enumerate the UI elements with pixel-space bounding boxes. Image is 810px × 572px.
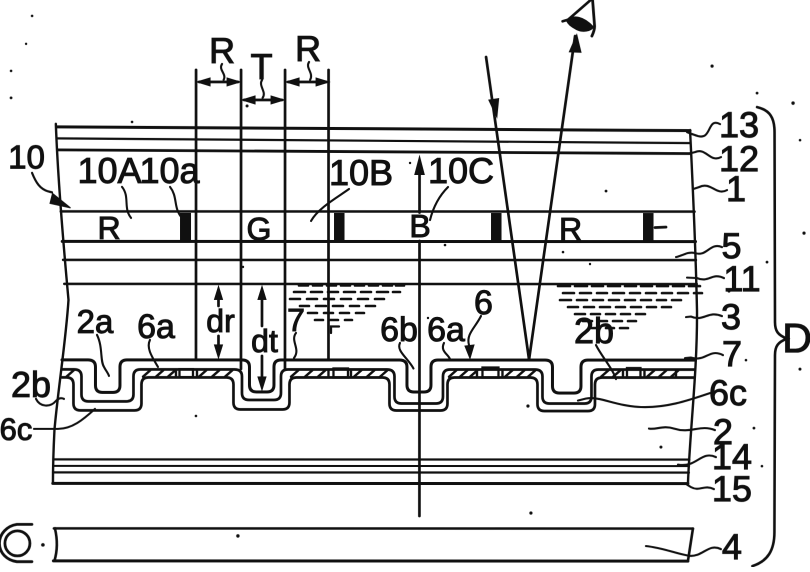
svg-text:6: 6	[474, 284, 493, 322]
svg-text:G: G	[247, 211, 272, 247]
svg-text:3: 3	[721, 296, 741, 337]
svg-text:2b: 2b	[574, 310, 614, 351]
svg-text:2a: 2a	[77, 303, 114, 340]
svg-text:4: 4	[722, 526, 742, 567]
svg-text:6c: 6c	[0, 412, 32, 447]
svg-text:10a: 10a	[139, 150, 200, 191]
svg-text:15: 15	[712, 468, 752, 509]
svg-text:D: D	[782, 315, 810, 361]
svg-text:6a: 6a	[427, 311, 465, 349]
svg-text:10: 10	[8, 138, 45, 175]
svg-text:1: 1	[726, 168, 746, 209]
svg-text:dr: dr	[206, 303, 235, 339]
svg-text:R: R	[559, 211, 582, 247]
svg-text:10A: 10A	[78, 150, 142, 191]
svg-text:6a: 6a	[137, 308, 175, 346]
svg-text:dt: dt	[251, 323, 278, 359]
svg-text:2b: 2b	[11, 364, 51, 405]
svg-text:6c: 6c	[709, 372, 747, 413]
svg-text:10B: 10B	[329, 152, 393, 193]
svg-text:7: 7	[722, 333, 742, 374]
svg-text:10C: 10C	[428, 150, 494, 191]
svg-text:R: R	[97, 210, 120, 246]
svg-text:11: 11	[723, 258, 760, 299]
